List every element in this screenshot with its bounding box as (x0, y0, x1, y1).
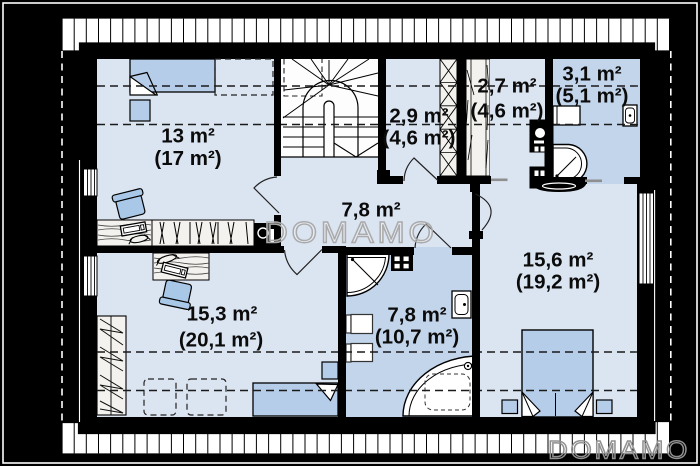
svg-text:3,1 m²: 3,1 m² (562, 63, 621, 86)
svg-text:2,7 m²: 2,7 m² (477, 75, 536, 98)
svg-text:(4,6 m²): (4,6 m²) (383, 127, 456, 150)
svg-text:7,8 m²: 7,8 m² (341, 199, 400, 222)
svg-text:(17 m²): (17 m²) (154, 147, 221, 170)
svg-text:13 m²: 13 m² (161, 125, 215, 148)
svg-text:15,3 m²: 15,3 m² (187, 303, 258, 326)
svg-text:(10,7 m²): (10,7 m²) (375, 326, 459, 349)
svg-text:15,6 m²: 15,6 m² (523, 249, 594, 272)
svg-text:2,9 m²: 2,9 m² (389, 105, 448, 128)
svg-text:(5,1 m²): (5,1 m²) (556, 85, 629, 108)
svg-text:7,8 m²: 7,8 m² (387, 304, 446, 327)
svg-text:DOMAMO: DOMAMO (548, 436, 690, 465)
svg-text:(20,1 m²): (20,1 m²) (179, 329, 263, 352)
svg-text:(19,2 m²): (19,2 m²) (516, 271, 600, 294)
svg-text:(4,6 m²): (4,6 m²) (471, 100, 544, 123)
